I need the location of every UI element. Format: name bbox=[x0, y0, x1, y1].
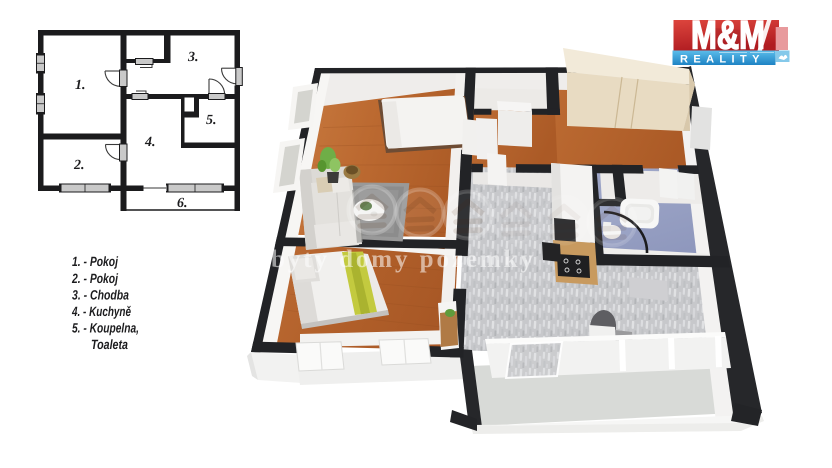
svg-text:6.: 6. bbox=[177, 196, 188, 211]
svg-text:5.: 5. bbox=[206, 113, 217, 128]
svg-text:1. - Pokoj: 1. - Pokoj bbox=[72, 254, 118, 269]
svg-text:3.: 3. bbox=[187, 50, 199, 65]
svg-text:REALITY: REALITY bbox=[680, 54, 765, 66]
svg-text:3. - Chodba: 3. - Chodba bbox=[72, 288, 129, 303]
svg-text:Toaleta: Toaleta bbox=[91, 337, 128, 352]
svg-text:2.: 2. bbox=[73, 158, 85, 173]
svg-text:5. - Koupelna,: 5. - Koupelna, bbox=[72, 321, 139, 336]
svg-text:byty domy pozemky: byty domy pozemky bbox=[271, 246, 534, 273]
svg-text:1.: 1. bbox=[75, 78, 86, 93]
svg-text:4.: 4. bbox=[144, 135, 156, 150]
svg-text:4. - Kuchyně: 4. - Kuchyně bbox=[71, 304, 131, 319]
svg-text:2. - Pokoj: 2. - Pokoj bbox=[71, 271, 118, 286]
